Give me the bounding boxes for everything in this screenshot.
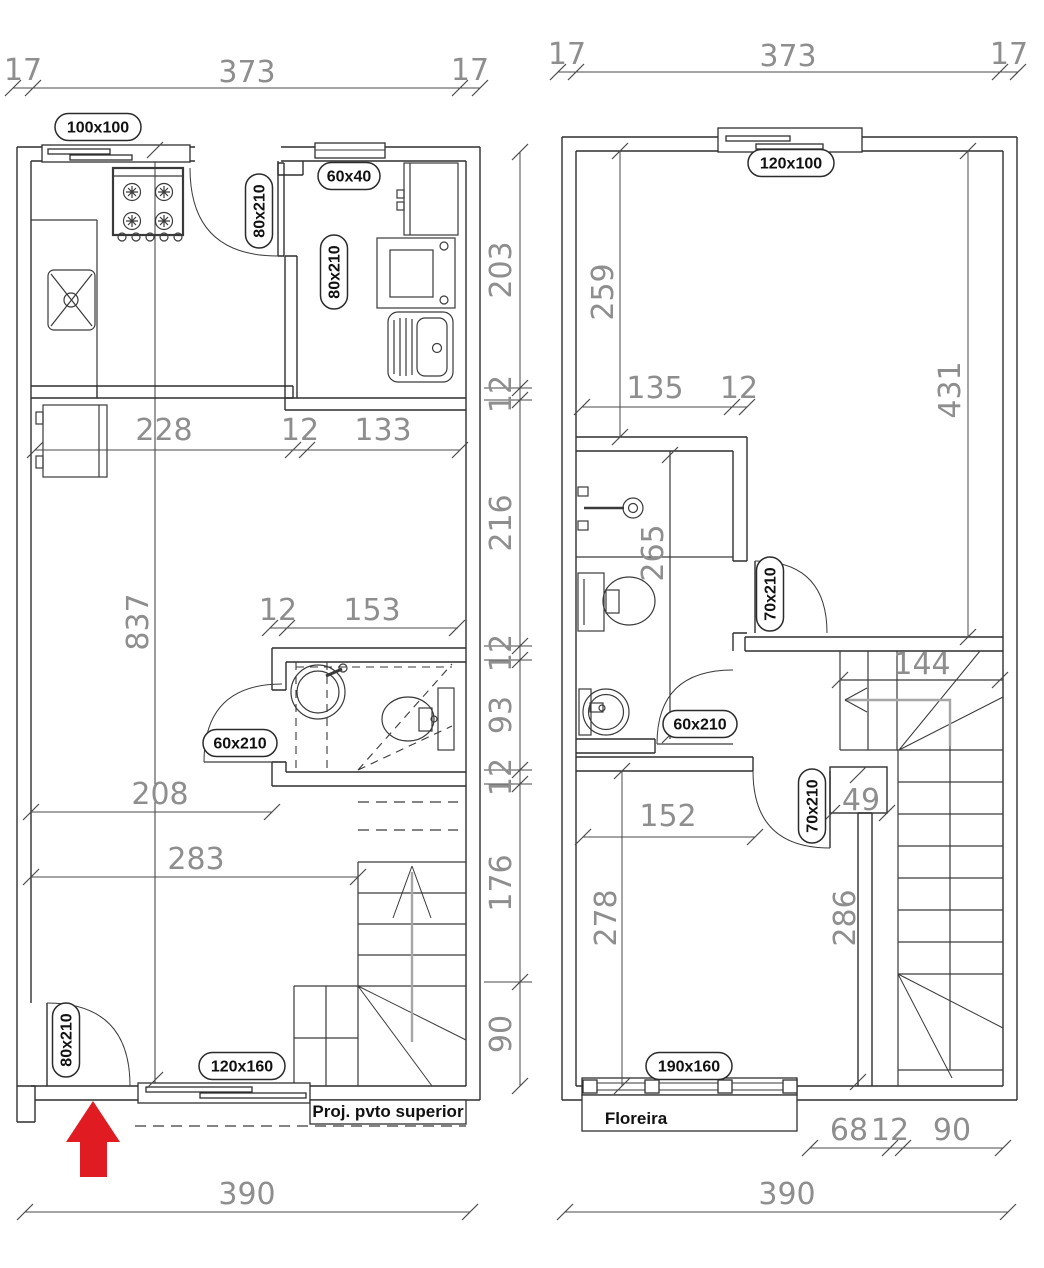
tag-text: 60x210 (673, 717, 726, 734)
door-size-tag: 80x210 (246, 174, 273, 248)
dim-text: 373 (218, 55, 275, 90)
gf-floor-opening-dashed (358, 802, 458, 830)
window-size-tag: 60x40 (318, 163, 380, 190)
tag-text: 70x210 (805, 779, 822, 832)
upper-floor-plan: Floreira 17 373 17 259 135 12 431 (548, 37, 1028, 1220)
door-size-tag: 70x210 (799, 769, 826, 843)
gf-window-front (138, 1083, 310, 1103)
planter-note-text: Floreira (605, 1109, 668, 1128)
uf-bath-wall (576, 739, 655, 753)
gf-sink-drainboard (388, 312, 453, 382)
tag-text: 60x210 (213, 736, 266, 753)
gf-bathroom (204, 648, 466, 786)
uf-outer-walls (562, 137, 1017, 1100)
dim-text: 208 (131, 777, 188, 812)
dim-text: 17 (548, 37, 586, 72)
dim-text: 203 (484, 241, 519, 298)
tag-text: 80x210 (252, 184, 269, 237)
dim-text: 12 (484, 634, 519, 672)
dim-text: 153 (343, 593, 400, 628)
uf-planter-box: Floreira (582, 1095, 797, 1131)
tag-text: 120x100 (760, 156, 822, 173)
dim-text: 12 (720, 371, 758, 406)
burner-icon (124, 184, 173, 230)
gf-kitchen-counter (31, 220, 97, 386)
dim-text: 373 (759, 39, 816, 74)
dim-text: 837 (121, 593, 156, 650)
uf-labels: 120x100 70x210 60x210 70x210 190x160 (646, 150, 834, 1080)
gf-window-service (315, 143, 385, 158)
gf-fridge-service (397, 163, 458, 235)
dim-text: 135 (626, 371, 683, 406)
entry-arrow-icon (66, 1101, 120, 1177)
door-size-tag: 60x210 (203, 730, 277, 757)
window-size-tag: 120x160 (199, 1053, 285, 1080)
window-size-tag: 100x100 (55, 114, 141, 141)
uf-window-bedroom1 (718, 128, 862, 152)
dim-text: 228 (135, 413, 192, 448)
gf-laundry-tank (48, 270, 95, 330)
uf-dimension-lines (550, 64, 1026, 1220)
gf-projection-note: Proj. pvto superior (310, 1100, 466, 1124)
dim-text: 390 (218, 1177, 275, 1212)
toilet-icon (382, 688, 454, 750)
gf-washer (377, 238, 455, 308)
tag-text: 80x210 (59, 1013, 76, 1066)
dim-text: 283 (167, 842, 224, 877)
tag-text: 100x100 (67, 120, 129, 137)
door-size-tag: 60x210 (663, 711, 737, 738)
window-size-tag: 120x100 (748, 150, 834, 177)
dim-text: 286 (828, 889, 863, 946)
washbasin-icon (291, 664, 347, 719)
dim-text: 90 (484, 1015, 519, 1053)
blueprint-page: Proj. pvto superior 17 373 17 228 12 133… (0, 0, 1044, 1268)
door-size-tag: 80x210 (321, 235, 348, 309)
dim-text: 265 (636, 524, 671, 581)
gf-inner-walls (31, 161, 466, 1086)
dim-text: 17 (4, 53, 42, 88)
uf-bathroom (576, 451, 733, 744)
tag-text: 190x160 (658, 1059, 720, 1076)
tag-text: 80x210 (327, 245, 344, 298)
gf-kitchen-wall (31, 386, 293, 398)
washbasin-icon (579, 689, 629, 735)
tag-text: 70x210 (763, 567, 780, 620)
tag-text: 60x40 (327, 169, 372, 186)
gf-fridge (36, 405, 107, 477)
door-size-tag: 80x210 (53, 1003, 80, 1077)
dim-text: 12 (484, 375, 519, 413)
tag-text: 120x160 (211, 1059, 273, 1076)
dim-text: 17 (990, 37, 1028, 72)
dim-text: 390 (758, 1177, 815, 1212)
gf-dimension-lines (5, 80, 532, 1220)
dim-text: 144 (893, 647, 950, 682)
projection-note-text: Proj. pvto superior (312, 1102, 464, 1121)
dim-text: 278 (589, 889, 624, 946)
dim-text: 49 (842, 783, 880, 818)
gf-outer-walls (17, 147, 480, 1122)
window-size-tag: 190x160 (646, 1053, 732, 1080)
door-size-tag: 70x210 (757, 557, 784, 631)
uf-stairs-lower (898, 750, 1003, 1086)
dim-text: 12 (871, 1113, 909, 1148)
uf-window-bedroom2 (582, 1078, 797, 1095)
dim-text: 431 (933, 361, 968, 418)
gf-stairs (294, 862, 466, 1086)
dim-text: 68 (830, 1113, 868, 1148)
gf-labels: 100x100 60x40 80x210 80x210 60x210 80x21… (53, 114, 381, 1080)
dim-text: 216 (484, 494, 519, 551)
floor-plan-drawing: Proj. pvto superior 17 373 17 228 12 133… (0, 0, 1044, 1268)
gf-service-walls (278, 161, 466, 410)
dim-text: 133 (354, 413, 411, 448)
dim-text: 12 (484, 758, 519, 796)
dim-text: 12 (281, 413, 319, 448)
dim-text: 93 (484, 696, 519, 734)
dim-text: 12 (259, 593, 297, 628)
dim-text: 176 (484, 854, 519, 911)
ground-floor-plan: Proj. pvto superior 17 373 17 228 12 133… (4, 53, 532, 1220)
dim-text: 90 (933, 1113, 971, 1148)
uf-inner-walls (576, 151, 1003, 1086)
shower-icon (578, 487, 643, 530)
dim-text: 152 (639, 799, 696, 834)
dim-text: 259 (586, 263, 621, 320)
uf-stair-wall (745, 637, 1003, 651)
dim-text: 17 (451, 53, 489, 88)
gf-stove (113, 168, 183, 241)
gf-window-kitchen (42, 145, 190, 162)
